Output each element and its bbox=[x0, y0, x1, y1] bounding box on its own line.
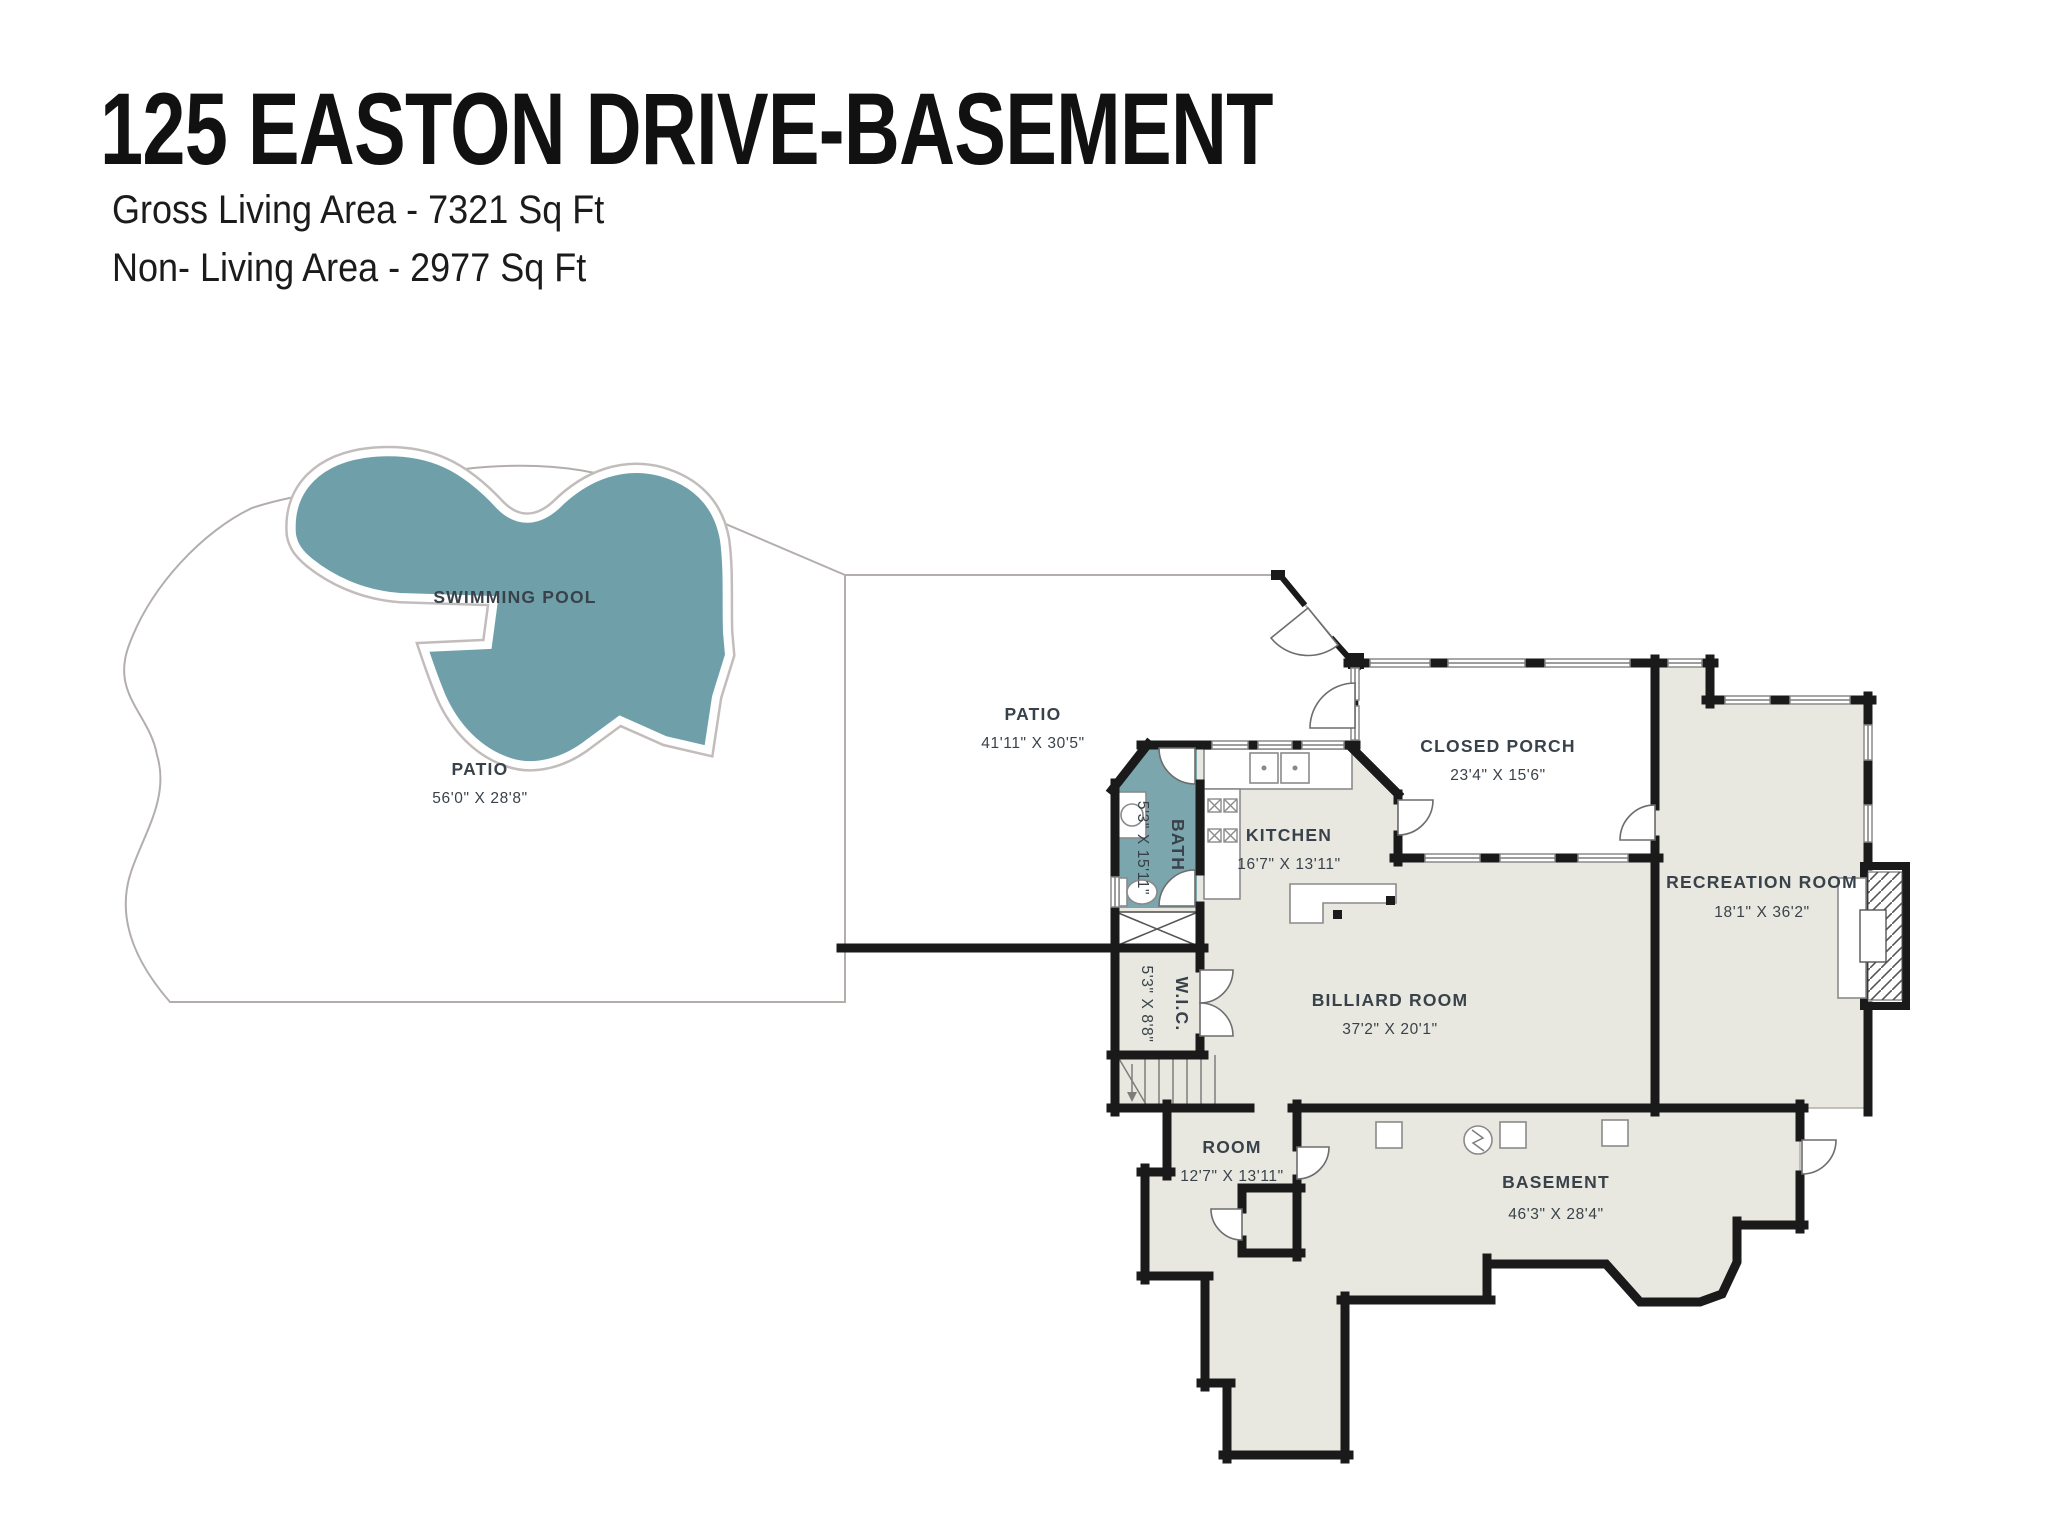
kitchen-label: KITCHEN bbox=[1246, 825, 1332, 845]
billiard-room-dim: 37'2" X 20'1" bbox=[1342, 1021, 1437, 1038]
bath-label: BATH bbox=[1168, 819, 1188, 871]
closet-x bbox=[1116, 912, 1198, 946]
basement-label: BASEMENT bbox=[1502, 1172, 1610, 1192]
toilet-tank-icon bbox=[1119, 878, 1127, 906]
wic-label: W.I.C. bbox=[1172, 977, 1192, 1032]
patio-main-dim: 41'11" X 30'5" bbox=[981, 735, 1084, 752]
closed-porch-dim: 23'4" X 15'6" bbox=[1450, 767, 1545, 784]
door-arc bbox=[1398, 800, 1433, 835]
room-label: ROOM bbox=[1202, 1137, 1261, 1157]
basement-dim: 46'3" X 28'4" bbox=[1508, 1206, 1603, 1223]
patio-left-dim: 56'0" X 28'8" bbox=[432, 790, 527, 807]
billiard-room-label: BILLIARD ROOM bbox=[1312, 990, 1469, 1010]
door-arc bbox=[1310, 683, 1355, 728]
patio-left-label: PATIO bbox=[452, 759, 509, 779]
page: { "header": { "title": "125 EASTON DRIVE… bbox=[0, 0, 2048, 1536]
door-arc bbox=[1271, 608, 1338, 655]
kitchen-dim: 16'7" X 13'11" bbox=[1237, 856, 1340, 873]
patio-main-label: PATIO bbox=[1005, 704, 1062, 724]
support-column bbox=[1500, 1122, 1526, 1148]
floor-plan: SWIMMING POOL PATIO 56'0" X 28'8" PATIO … bbox=[0, 0, 2048, 1536]
wic-dim: 5'3" X 8'8" bbox=[1138, 966, 1155, 1043]
door-arc bbox=[1802, 1140, 1836, 1174]
support-column bbox=[1602, 1120, 1628, 1146]
support-column bbox=[1376, 1122, 1402, 1148]
swimming-pool-label: SWIMMING POOL bbox=[433, 587, 596, 607]
recreation-room-dim: 18'1" X 36'2" bbox=[1714, 904, 1809, 921]
bath-dim: 5'3" X 15'11" bbox=[1134, 801, 1151, 895]
recreation-room-label: RECREATION ROOM bbox=[1666, 872, 1858, 892]
swimming-pool-area bbox=[292, 452, 729, 765]
closed-porch-label: CLOSED PORCH bbox=[1420, 736, 1575, 756]
room-dim: 12'7" X 13'11" bbox=[1180, 1168, 1283, 1185]
door-arc bbox=[1620, 805, 1655, 840]
